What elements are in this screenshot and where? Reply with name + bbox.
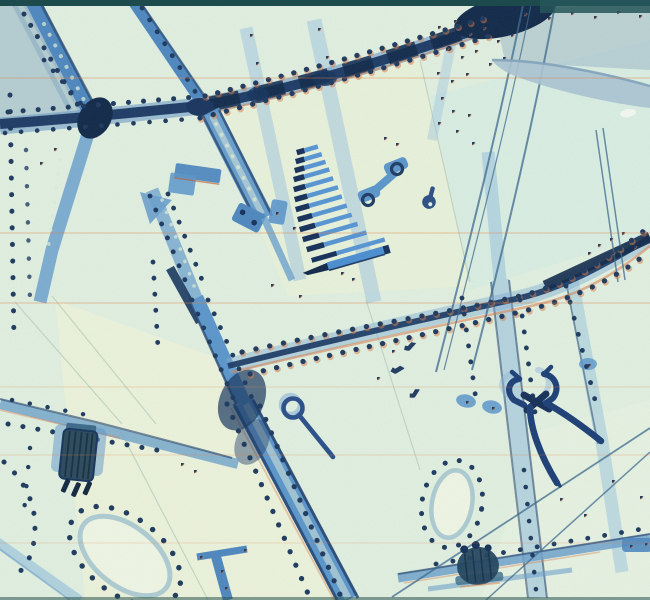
film-artifacts xyxy=(0,0,650,600)
top-right-corner-strip xyxy=(540,0,650,13)
film-grain-cool xyxy=(0,0,650,600)
xray-image xyxy=(0,0,650,600)
